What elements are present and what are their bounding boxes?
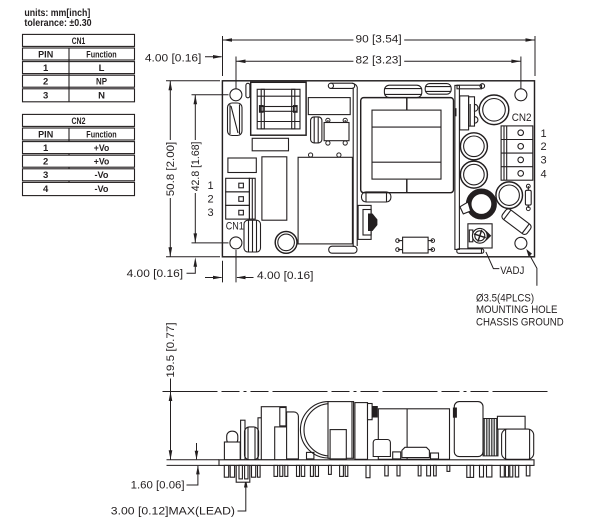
svg-text:PIN: PIN — [38, 49, 53, 60]
svg-text:3: 3 — [43, 170, 48, 181]
svg-text:1: 1 — [43, 143, 49, 154]
svg-text:3.00 [0.12]MAX(LEAD): 3.00 [0.12]MAX(LEAD) — [111, 506, 235, 518]
svg-text:CN1: CN1 — [72, 36, 86, 47]
svg-text:4.00 [0.16]: 4.00 [0.16] — [127, 268, 184, 280]
svg-text:NP: NP — [96, 77, 108, 88]
svg-text:1: 1 — [207, 180, 213, 192]
svg-text:L: L — [99, 63, 105, 74]
svg-text:3: 3 — [43, 91, 48, 102]
svg-text:50.8 [2.00]: 50.8 [2.00] — [165, 142, 177, 197]
svg-text:-Vo: -Vo — [95, 184, 109, 195]
svg-text:Ø3.5(4PLCS): Ø3.5(4PLCS) — [476, 293, 534, 305]
svg-text:1: 1 — [43, 63, 49, 74]
svg-text:+Vo: +Vo — [94, 143, 110, 154]
svg-text:19.5 [0.77]: 19.5 [0.77] — [165, 322, 177, 377]
svg-text:MOUNTING HOLE: MOUNTING HOLE — [476, 304, 558, 316]
svg-text:VADJ: VADJ — [500, 265, 524, 277]
svg-text:CN1: CN1 — [226, 220, 244, 232]
svg-text:1: 1 — [540, 128, 546, 140]
svg-text:2: 2 — [207, 194, 213, 206]
svg-text:4.00 [0.16]: 4.00 [0.16] — [257, 270, 314, 282]
svg-text:4.00 [0.16]: 4.00 [0.16] — [145, 53, 202, 65]
svg-text:3: 3 — [207, 207, 213, 219]
svg-text:CHASSIS GROUND: CHASSIS GROUND — [476, 317, 564, 329]
svg-text:PIN: PIN — [38, 129, 53, 140]
svg-text:tolerance: ±0.30: tolerance: ±0.30 — [24, 18, 92, 29]
svg-text:90 [3.54]: 90 [3.54] — [356, 33, 402, 45]
svg-text:2: 2 — [43, 157, 48, 168]
svg-text:4: 4 — [540, 168, 546, 180]
svg-text:Function: Function — [86, 49, 117, 60]
svg-text:3: 3 — [540, 155, 546, 167]
svg-text:1.60 [0.06]: 1.60 [0.06] — [131, 480, 185, 492]
svg-text:2: 2 — [540, 141, 546, 153]
svg-text:CN2: CN2 — [512, 112, 532, 124]
svg-text:+Vo: +Vo — [94, 157, 110, 168]
svg-text:CN2: CN2 — [72, 116, 86, 127]
svg-text:82 [3.23]: 82 [3.23] — [356, 55, 402, 67]
svg-text:-Vo: -Vo — [95, 170, 109, 181]
svg-text:42.8 [1.68]: 42.8 [1.68] — [190, 142, 202, 192]
svg-text:N: N — [98, 91, 105, 102]
svg-text:4: 4 — [43, 184, 49, 195]
svg-text:Function: Function — [86, 129, 117, 140]
svg-text:2: 2 — [43, 77, 48, 88]
